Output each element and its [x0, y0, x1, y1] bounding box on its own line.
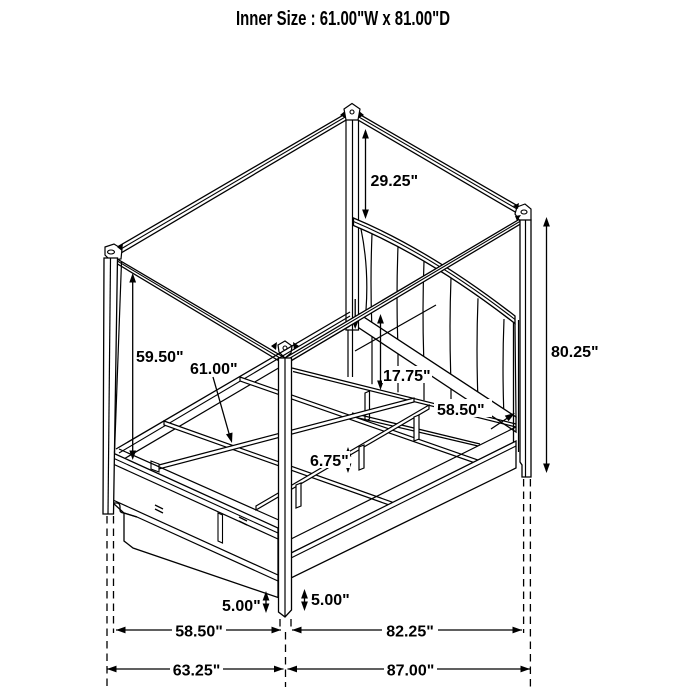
svg-text:5.00": 5.00" [222, 598, 261, 615]
svg-text:80.25": 80.25" [551, 344, 599, 361]
svg-text:58.50": 58.50" [175, 624, 223, 641]
svg-text:59.50": 59.50" [136, 349, 184, 366]
svg-text:58.50": 58.50" [437, 402, 485, 419]
svg-text:87.00": 87.00" [387, 663, 435, 680]
svg-text:6.75": 6.75" [310, 453, 349, 470]
svg-text:82.25": 82.25" [386, 624, 434, 641]
svg-text:61.00": 61.00" [190, 361, 238, 378]
svg-text:Inner Size : 61.00"W x 81.00"D: Inner Size : 61.00"W x 81.00"D [236, 8, 450, 30]
svg-text:63.25": 63.25" [173, 663, 221, 680]
svg-text:29.25": 29.25" [371, 173, 419, 190]
svg-text:5.00": 5.00" [311, 592, 350, 609]
svg-text:17.75": 17.75" [383, 368, 431, 385]
